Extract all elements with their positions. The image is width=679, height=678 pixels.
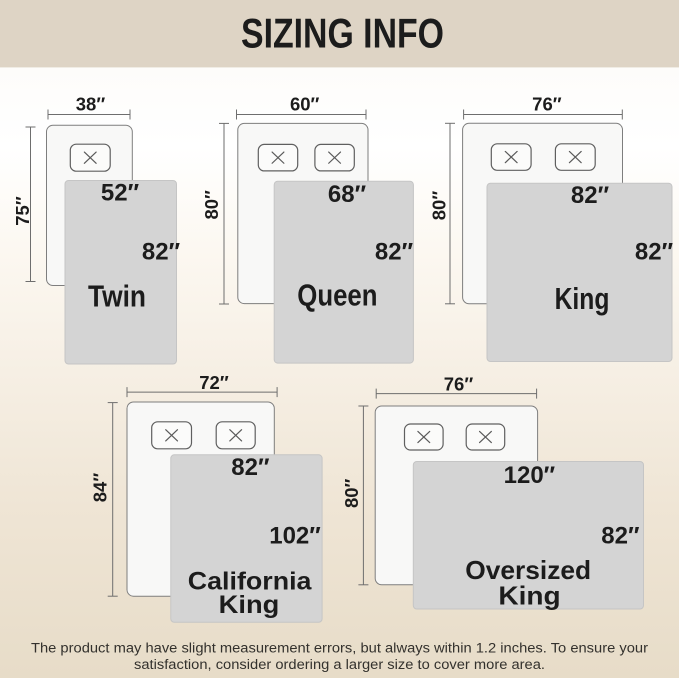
svg-text:King: King	[219, 591, 280, 619]
svg-text:82″: 82″	[142, 238, 181, 265]
svg-text:76″: 76″	[532, 94, 562, 115]
svg-text:72″: 72″	[199, 372, 229, 393]
svg-text:Queen: Queen	[297, 278, 377, 313]
svg-text:60″: 60″	[290, 94, 320, 115]
svg-text:82″: 82″	[601, 523, 640, 550]
svg-text:84″: 84″	[90, 473, 111, 503]
svg-text:82″: 82″	[571, 182, 610, 209]
svg-text:The product may have slight me: The product may have slight measurement …	[31, 641, 649, 656]
svg-text:38″: 38″	[76, 94, 106, 115]
svg-text:82″: 82″	[375, 239, 414, 266]
svg-text:82″: 82″	[231, 454, 270, 481]
svg-text:82″: 82″	[635, 239, 674, 266]
svg-text:76″: 76″	[444, 374, 474, 395]
svg-text:80″: 80″	[341, 478, 362, 508]
svg-text:52″: 52″	[101, 180, 140, 207]
svg-text:King: King	[498, 580, 560, 610]
svg-text:SIZING INFO: SIZING INFO	[241, 10, 444, 57]
svg-text:80″: 80″	[429, 191, 450, 221]
svg-text:75″: 75″	[12, 196, 33, 226]
svg-text:Twin: Twin	[88, 279, 146, 314]
svg-text:satisfaction, consider orderin: satisfaction, consider ordering a larger…	[134, 657, 545, 672]
svg-text:80″: 80″	[201, 190, 222, 220]
svg-text:120″: 120″	[504, 462, 556, 489]
svg-text:King: King	[555, 281, 610, 316]
svg-text:102″: 102″	[269, 522, 321, 549]
svg-text:68″: 68″	[328, 181, 367, 208]
